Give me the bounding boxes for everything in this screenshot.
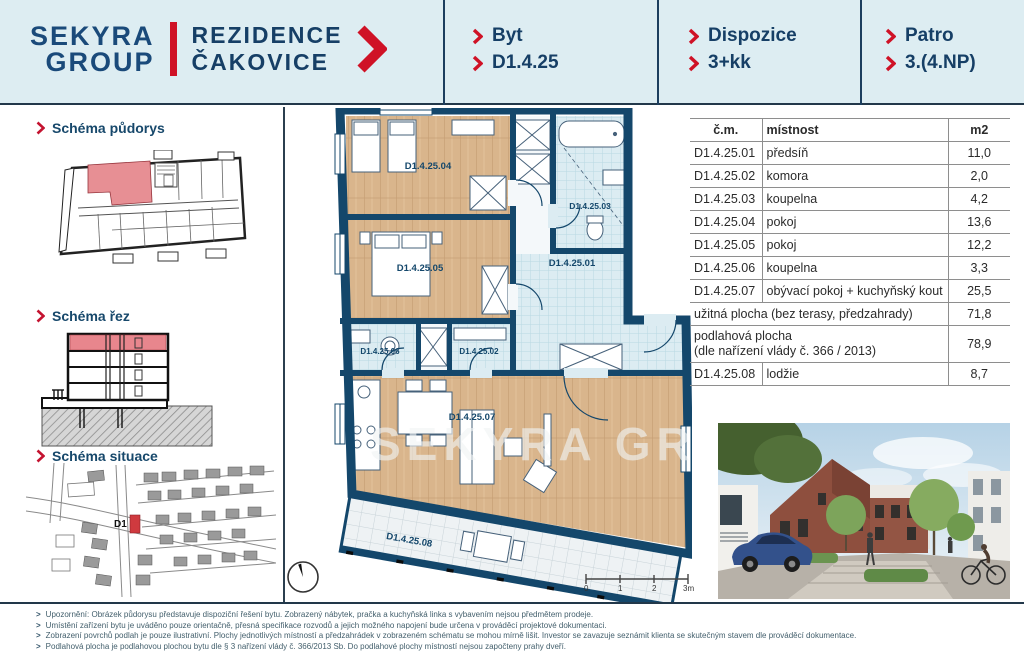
chevron-right-icon xyxy=(688,55,699,72)
footer-note: > Zobrazení povrchů podlah je pouze ilus… xyxy=(36,631,1024,642)
header-divider xyxy=(443,0,445,105)
room-area: 11,0 xyxy=(948,142,1010,165)
unit-info-block: Byt D1.4.25 xyxy=(472,25,559,74)
project-line1: REZIDENCE xyxy=(192,22,343,49)
footer-notes: > Upozornění: Obrázek půdorysu představu… xyxy=(0,602,1024,655)
room-area: 2,0 xyxy=(948,165,1010,188)
chevron-right-icon xyxy=(688,28,699,45)
floor-info-block: Patro 3.(4.NP) xyxy=(885,25,976,74)
col-header-code: č.m. xyxy=(690,119,762,142)
scale-bar: 0 1 2 3m xyxy=(583,572,695,596)
footer-note: > Podlahová plocha je podlahovou plochou… xyxy=(36,642,1024,653)
chevron-right-icon xyxy=(885,55,896,72)
unit-label: Byt xyxy=(492,25,523,47)
table-header-row: č.m. místnost m2 xyxy=(690,119,1010,142)
scale-tick-label: 3m xyxy=(683,584,694,593)
scale-bar-line xyxy=(583,573,695,585)
summary-row: podlahová plocha (dle nařízení vlády č. … xyxy=(690,326,1010,363)
room-label: D1.4.25.03 xyxy=(569,201,611,211)
room-name: pokoj xyxy=(762,234,948,257)
logo-line2: GROUP xyxy=(30,49,155,75)
chevron-right-icon xyxy=(885,28,896,45)
chevron-icon: > xyxy=(36,621,41,632)
header-divider xyxy=(860,0,862,105)
logo-line1: SEKYRA xyxy=(30,23,155,49)
room-code: D1.4.25.08 xyxy=(690,363,762,386)
room-code: D1.4.25.04 xyxy=(690,211,762,234)
room-label: D1.4.25.04 xyxy=(405,161,452,172)
schema-rez-label: Schéma řez xyxy=(36,308,130,324)
room-area: 25,5 xyxy=(948,280,1010,303)
floor-label: Patro xyxy=(905,25,954,47)
floorplan-sheet: SEKYRA GROUP REZIDENCE ČAKOVICE Byt D1.4… xyxy=(0,0,1024,655)
table-row: D1.4.25.03 koupelna 4,2 xyxy=(690,188,1010,211)
summary-label-line1: podlahová plocha xyxy=(694,329,944,344)
table-row: D1.4.25.02 komora 2,0 xyxy=(690,165,1010,188)
room-code: D1.4.25.06 xyxy=(690,257,762,280)
room-label: D1.4.25.05 xyxy=(397,263,444,274)
project-line2: ČAKOVICE xyxy=(192,49,343,76)
header-divider xyxy=(657,0,659,105)
room-area: 3,3 xyxy=(948,257,1010,280)
highlighted-building xyxy=(130,515,140,533)
entry-vestibule-floor xyxy=(628,320,686,374)
room-label: D1.4.25.06 xyxy=(360,347,400,356)
room-name: koupelna xyxy=(762,257,948,280)
chevron-right-icon xyxy=(36,121,45,135)
compass-north-icon xyxy=(283,556,323,596)
unit-value: D1.4.25 xyxy=(492,52,559,74)
logo-text: SEKYRA GROUP xyxy=(30,23,155,75)
chevron-right-icon xyxy=(472,55,483,72)
logo-red-bar xyxy=(170,22,177,76)
table-row: D1.4.25.01 předsíň 11,0 xyxy=(690,142,1010,165)
room-code: D1.4.25.03 xyxy=(690,188,762,211)
chevron-right-icon xyxy=(36,309,45,323)
schema-label-text: Schéma situace xyxy=(52,448,158,464)
room-area: 12,2 xyxy=(948,234,1010,257)
schema-pudorys-label: Schéma půdorys xyxy=(36,120,165,136)
site-map-schematic: D1 xyxy=(26,463,276,599)
header: SEKYRA GROUP REZIDENCE ČAKOVICE Byt D1.4… xyxy=(0,0,1024,105)
summary-label-line2: (dle nařízení vlády č. 366 / 2013) xyxy=(694,344,944,359)
table-row: D1.4.25.04 pokoj 13,6 xyxy=(690,211,1010,234)
footer-note: > Umístění zařízení bytu je uváděno pouz… xyxy=(36,621,1024,632)
floor-value: 3.(4.NP) xyxy=(905,52,976,74)
room-area-table: č.m. místnost m2 D1.4.25.01 předsíň 11,0… xyxy=(690,118,1010,386)
table-row: D1.4.25.05 pokoj 12,2 xyxy=(690,234,1010,257)
layout-info-block: Dispozice 3+kk xyxy=(688,25,797,74)
summary-row: užitná plocha (bez terasy, předzahrady) … xyxy=(690,303,1010,326)
room-area: 13,6 xyxy=(948,211,1010,234)
table-row: D1.4.25.06 koupelna 3,3 xyxy=(690,257,1010,280)
note-text: Umístění zařízení bytu je uváděno pouze … xyxy=(46,621,607,632)
chevron-icon: > xyxy=(36,610,41,621)
col-header-area: m2 xyxy=(948,119,1010,142)
scale-tick-label: 2 xyxy=(652,584,656,593)
room-name: komora xyxy=(762,165,948,188)
room-label: D1.4.25.01 xyxy=(549,258,596,269)
room-name: lodžie xyxy=(762,363,948,386)
table-row: D1.4.25.08 lodžie 8,7 xyxy=(690,363,1010,386)
building-floor-schematic xyxy=(58,150,253,268)
summary-label: užitná plocha (bez terasy, předzahrady) xyxy=(690,303,948,326)
room-label: D1.4.25.02 xyxy=(459,347,499,356)
layout-label: Dispozice xyxy=(708,25,797,47)
schema-label-text: Schéma půdorys xyxy=(52,120,165,136)
room-code: D1.4.25.07 xyxy=(690,280,762,303)
room-name: obývací pokoj + kuchyňský kout xyxy=(762,280,948,303)
room-code: D1.4.25.05 xyxy=(690,234,762,257)
note-text: Zobrazení povrchů podlah je pouze ilustr… xyxy=(46,631,857,642)
watermark: SEKYRA GR xyxy=(370,418,692,470)
room-area: 8,7 xyxy=(948,363,1010,386)
layout-value: 3+kk xyxy=(708,52,751,74)
room-code: D1.4.25.01 xyxy=(690,142,762,165)
summary-label: podlahová plocha (dle nařízení vlády č. … xyxy=(690,326,948,363)
room-name: pokoj xyxy=(762,211,948,234)
table-row: D1.4.25.07 obývací pokoj + kuchyňský kou… xyxy=(690,280,1010,303)
note-text: Upozornění: Obrázek půdorysu představuje… xyxy=(46,610,593,621)
footer-note: > Upozornění: Obrázek půdorysu představu… xyxy=(36,610,1024,621)
summary-area: 71,8 xyxy=(948,303,1010,326)
chevron-icon: > xyxy=(36,631,41,642)
summary-area: 78,9 xyxy=(948,326,1010,363)
room-name: předsíň xyxy=(762,142,948,165)
project-name: REZIDENCE ČAKOVICE xyxy=(192,22,343,76)
col-header-room: místnost xyxy=(762,119,948,142)
apartment-floorplan: D1.4.25.08 xyxy=(332,108,692,605)
room-area: 4,2 xyxy=(948,188,1010,211)
note-text: Podlahová plocha je podlahovou plochou b… xyxy=(46,642,566,653)
room-name: koupelna xyxy=(762,188,948,211)
scale-tick-label: 1 xyxy=(618,584,622,593)
schema-situace-label: Schéma situace xyxy=(36,448,158,464)
chevron-right-icon xyxy=(472,28,483,45)
building-d1-label: D1 xyxy=(114,519,127,530)
project-visualization-photo xyxy=(718,423,1010,599)
company-logo: SEKYRA GROUP REZIDENCE ČAKOVICE xyxy=(30,22,387,76)
sidebar-divider xyxy=(283,107,285,602)
chevron-right-icon xyxy=(357,25,387,73)
chevron-icon: > xyxy=(36,642,41,653)
scale-tick-label: 0 xyxy=(584,584,588,593)
building-section-schematic xyxy=(40,326,215,448)
room-code: D1.4.25.02 xyxy=(690,165,762,188)
chevron-right-icon xyxy=(36,449,45,463)
schema-label-text: Schéma řez xyxy=(52,308,130,324)
